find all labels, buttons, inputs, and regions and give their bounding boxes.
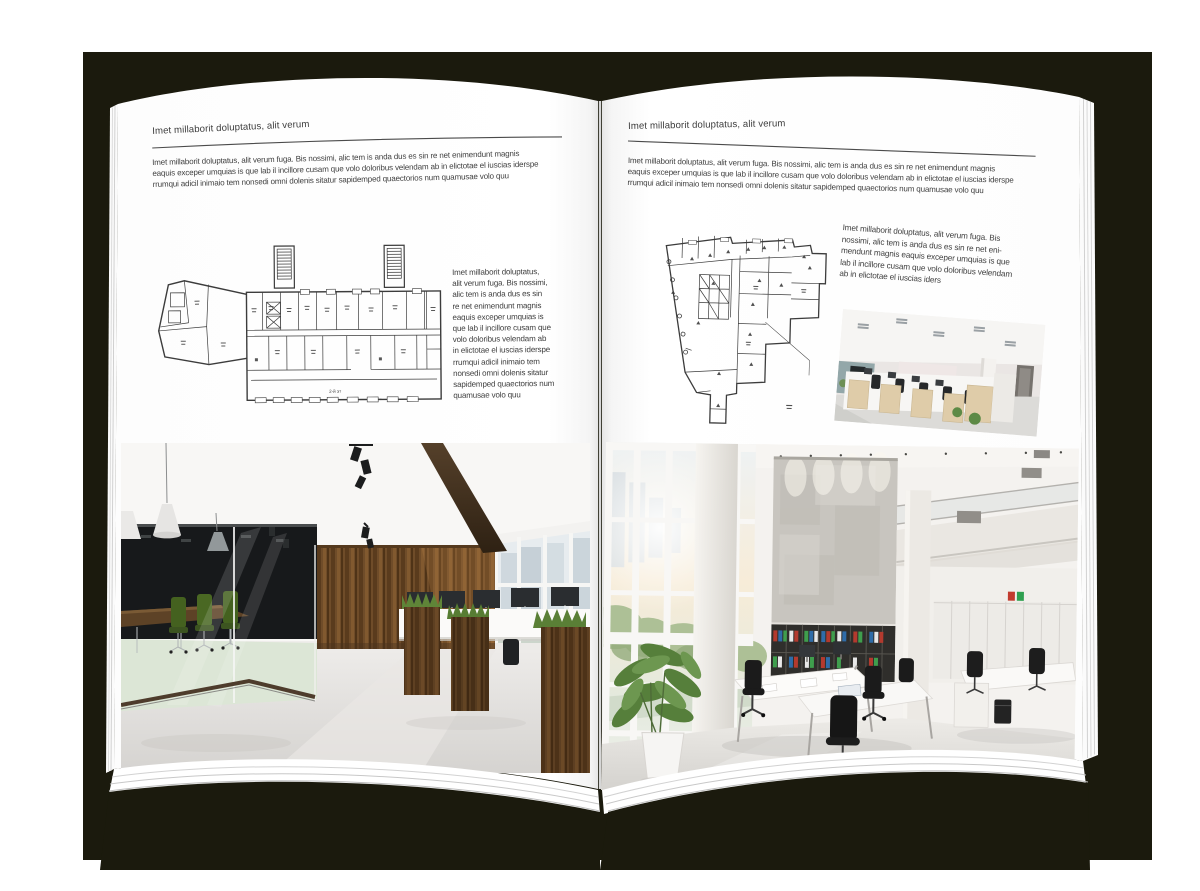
left-floor-plan: 2-й эт [150, 229, 451, 421]
floor-plan-level-label: 2-й эт [329, 388, 341, 394]
right-office-photo [601, 442, 1079, 797]
magazine-mockup: Imet millaborit doluptatus, alit verum I… [0, 0, 1200, 891]
right-small-office-photo [834, 309, 1045, 437]
left-office-photo [121, 443, 590, 773]
left-side-paragraph: Imet millaborit doluptatus, alit verum f… [452, 266, 571, 402]
right-floor-plan [638, 221, 838, 428]
